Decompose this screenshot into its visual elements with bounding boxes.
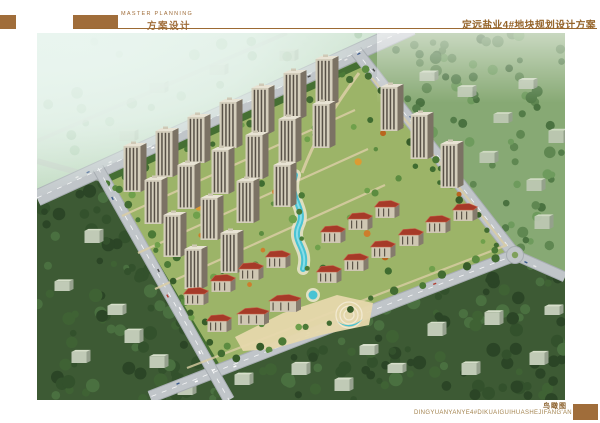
header-accent-block-small xyxy=(0,15,16,29)
header-accent-block-large xyxy=(73,15,118,29)
header-eyebrow: MASTER PLANNING xyxy=(121,11,193,17)
view-caption-pinyin: DINGYUANYANYE4#DIKUAIGUIHUASHEJIFANG'AN xyxy=(414,410,572,416)
footer-accent-block xyxy=(573,404,598,420)
aerial-rendering xyxy=(37,33,565,400)
header-subtitle: 方案设计 xyxy=(147,18,191,32)
page-title: 定远盐业4#地块规划设计方案 xyxy=(462,17,596,31)
